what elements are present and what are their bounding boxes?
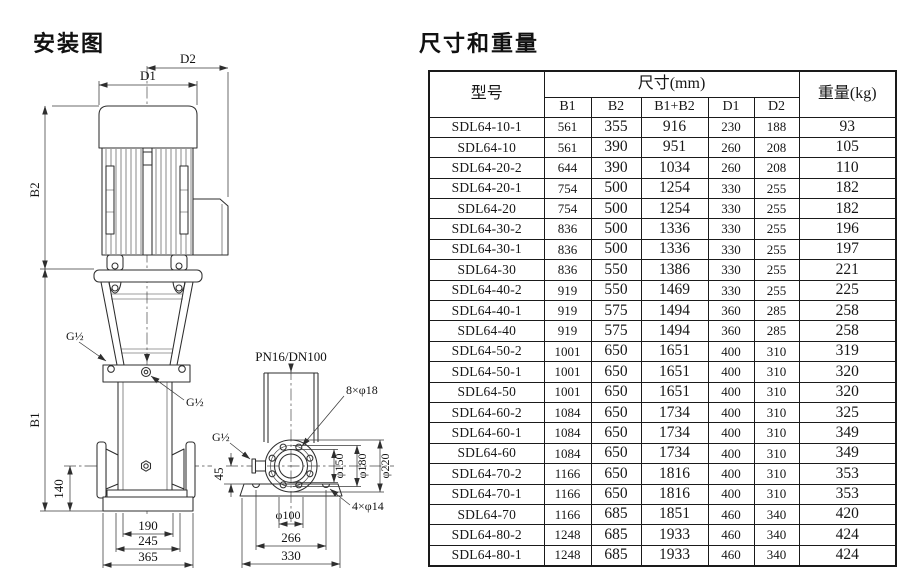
flange-view-dimensions: PN16/DN100 G½ 45 8×φ18 φ150 φ180 φ220 4×… xyxy=(211,349,392,568)
base-holes-label: 4×φ14 xyxy=(352,499,384,513)
table-row: SDL64-50-210016501651400310319 xyxy=(429,341,896,361)
dim-label-190: 190 xyxy=(138,518,158,533)
b2-cell: 355 xyxy=(591,117,641,137)
table-row: SDL64-30-28365001336330255196 xyxy=(429,219,896,239)
b1-cell: 754 xyxy=(544,178,591,198)
table-row: SDL64-30-18365001336330255197 xyxy=(429,239,896,259)
b1b2-cell: 1734 xyxy=(641,443,708,463)
b1-cell: 561 xyxy=(544,137,591,157)
b2-cell: 685 xyxy=(591,525,641,545)
weight-cell: 182 xyxy=(799,199,896,219)
b1b2-cell: 916 xyxy=(641,117,708,137)
b1-cell: 836 xyxy=(544,260,591,280)
dimensions-title: 尺寸和重量 xyxy=(419,26,539,58)
d1-cell: 330 xyxy=(708,199,754,219)
g-half-label-head-center: G½ xyxy=(186,395,204,409)
d2-cell: 310 xyxy=(754,382,799,402)
weight-cell: 258 xyxy=(799,321,896,341)
d2-cell: 255 xyxy=(754,178,799,198)
pump-base xyxy=(103,490,193,511)
model-cell: SDL64-30 xyxy=(429,260,544,280)
b1-cell: 561 xyxy=(544,117,591,137)
model-cell: SDL64-20-2 xyxy=(429,158,544,178)
d1-cell: 360 xyxy=(708,321,754,341)
weight-cell: 349 xyxy=(799,423,896,443)
col-header-d1: D1 xyxy=(708,97,754,117)
d2-cell: 310 xyxy=(754,484,799,504)
table-row: SDL64-60-110846501734400310349 xyxy=(429,423,896,443)
b2-cell: 685 xyxy=(591,504,641,524)
b2-cell: 500 xyxy=(591,219,641,239)
model-cell: SDL64-10 xyxy=(429,137,544,157)
d1-cell: 460 xyxy=(708,545,754,565)
weight-cell: 349 xyxy=(799,443,896,463)
col-header-b1b2: B1+B2 xyxy=(641,97,708,117)
d2-cell: 255 xyxy=(754,260,799,280)
table-row: SDL64-80-112486851933460340424 xyxy=(429,545,896,565)
d2-cell: 310 xyxy=(754,402,799,422)
table-row: SDL64-7011666851851460340420 xyxy=(429,504,896,524)
dim-label-45: 45 xyxy=(211,468,226,481)
b1-cell: 1248 xyxy=(544,545,591,565)
d1-cell: 330 xyxy=(708,280,754,300)
dim-label-b2: B2 xyxy=(27,182,42,197)
b1b2-cell: 1816 xyxy=(641,484,708,504)
flange-holes-label: 8×φ18 xyxy=(346,383,378,397)
d2-cell: 255 xyxy=(754,199,799,219)
pump-head xyxy=(103,365,190,382)
d1-cell: 400 xyxy=(708,402,754,422)
b1-cell: 919 xyxy=(544,321,591,341)
table-row: SDL64-207545001254330255182 xyxy=(429,199,896,219)
model-cell: SDL64-40 xyxy=(429,321,544,341)
pump-side-view xyxy=(64,66,228,516)
model-cell: SDL64-10-1 xyxy=(429,117,544,137)
g-half-label-port: G½ xyxy=(212,430,230,444)
dim-label-245: 245 xyxy=(138,533,158,548)
b2-cell: 500 xyxy=(591,199,641,219)
b1b2-cell: 1851 xyxy=(641,504,708,524)
b1-cell: 919 xyxy=(544,301,591,321)
weight-cell: 93 xyxy=(799,117,896,137)
model-cell: SDL64-70 xyxy=(429,504,544,524)
weight-cell: 110 xyxy=(799,158,896,178)
b1-cell: 1001 xyxy=(544,341,591,361)
dim-label-d2: D2 xyxy=(180,51,196,66)
b2-cell: 650 xyxy=(591,443,641,463)
weight-cell: 325 xyxy=(799,402,896,422)
d1-cell: 400 xyxy=(708,443,754,463)
b1b2-cell: 1651 xyxy=(641,341,708,361)
weight-cell: 196 xyxy=(799,219,896,239)
b1-cell: 754 xyxy=(544,199,591,219)
table-row: SDL64-308365501386330255221 xyxy=(429,260,896,280)
d1-cell: 330 xyxy=(708,260,754,280)
weight-cell: 319 xyxy=(799,341,896,361)
weight-cell: 320 xyxy=(799,382,896,402)
model-cell: SDL64-40-1 xyxy=(429,301,544,321)
table-row: SDL64-70-211666501816400310353 xyxy=(429,464,896,484)
b2-cell: 650 xyxy=(591,341,641,361)
weight-cell: 182 xyxy=(799,178,896,198)
weight-cell: 221 xyxy=(799,260,896,280)
weight-cell: 225 xyxy=(799,280,896,300)
d2-cell: 340 xyxy=(754,504,799,524)
d2-cell: 285 xyxy=(754,321,799,341)
weight-cell: 424 xyxy=(799,525,896,545)
table-row: SDL64-10561390951260208105 xyxy=(429,137,896,157)
model-cell: SDL64-20 xyxy=(429,199,544,219)
gauge-port xyxy=(252,459,266,473)
table-row: SDL64-40-19195751494360285258 xyxy=(429,301,896,321)
b1b2-cell: 1386 xyxy=(641,260,708,280)
dim-label-phi150: φ150 xyxy=(332,454,346,479)
table-row: SDL64-409195751494360285258 xyxy=(429,321,896,341)
b2-cell: 500 xyxy=(591,178,641,198)
weight-cell: 353 xyxy=(799,484,896,504)
d2-cell: 255 xyxy=(754,239,799,259)
b1b2-cell: 1034 xyxy=(641,158,708,178)
d1-cell: 400 xyxy=(708,341,754,361)
weight-cell: 258 xyxy=(799,301,896,321)
model-cell: SDL64-70-2 xyxy=(429,464,544,484)
d2-cell: 310 xyxy=(754,341,799,361)
dim-label-phi220: φ220 xyxy=(378,454,392,479)
model-cell: SDL64-60-2 xyxy=(429,402,544,422)
motor-fan-cover xyxy=(99,106,197,148)
d2-cell: 340 xyxy=(754,545,799,565)
table-row: SDL64-50-110016501651400310320 xyxy=(429,362,896,382)
table-row: SDL64-60-210846501734400310325 xyxy=(429,402,896,422)
b1b2-cell: 1469 xyxy=(641,280,708,300)
b1b2-cell: 1336 xyxy=(641,239,708,259)
b1b2-cell: 1651 xyxy=(641,362,708,382)
b1-cell: 919 xyxy=(544,280,591,300)
dim-label-phi100: φ100 xyxy=(276,508,301,522)
d1-cell: 260 xyxy=(708,158,754,178)
dim-label-d1: D1 xyxy=(140,68,156,83)
model-cell: SDL64-50-2 xyxy=(429,341,544,361)
table-row: SDL64-70-111666501816400310353 xyxy=(429,484,896,504)
b1b2-cell: 1933 xyxy=(641,545,708,565)
b1-cell: 1166 xyxy=(544,464,591,484)
b1b2-cell: 1336 xyxy=(641,219,708,239)
b1b2-cell: 1254 xyxy=(641,178,708,198)
col-header-b1: B1 xyxy=(544,97,591,117)
d2-cell: 340 xyxy=(754,525,799,545)
b2-cell: 390 xyxy=(591,158,641,178)
table-row: SDL64-20-17545001254330255182 xyxy=(429,178,896,198)
model-cell: SDL64-60 xyxy=(429,443,544,463)
model-cell: SDL64-50-1 xyxy=(429,362,544,382)
d1-cell: 400 xyxy=(708,423,754,443)
b1-cell: 1001 xyxy=(544,382,591,402)
catalog-page: { "page": { "background": "#ffffff", "li… xyxy=(0,0,900,582)
d2-cell: 255 xyxy=(754,219,799,239)
d1-cell: 400 xyxy=(708,362,754,382)
model-cell: SDL64-20-1 xyxy=(429,178,544,198)
b1-cell: 1248 xyxy=(544,525,591,545)
col-header-d2: D2 xyxy=(754,97,799,117)
d1-cell: 360 xyxy=(708,301,754,321)
d1-cell: 400 xyxy=(708,464,754,484)
weight-cell: 197 xyxy=(799,239,896,259)
d1-cell: 460 xyxy=(708,525,754,545)
d1-cell: 230 xyxy=(708,117,754,137)
model-cell: SDL64-50 xyxy=(429,382,544,402)
shaft-end-arrow xyxy=(144,354,150,362)
col-header-size-group: 尺寸(mm) xyxy=(544,71,799,97)
d2-cell: 310 xyxy=(754,362,799,382)
d1-cell: 330 xyxy=(708,178,754,198)
b2-cell: 390 xyxy=(591,137,641,157)
d2-cell: 310 xyxy=(754,464,799,484)
weight-cell: 424 xyxy=(799,545,896,565)
pump-column xyxy=(118,382,172,490)
b2-cell: 575 xyxy=(591,321,641,341)
b1-cell: 1084 xyxy=(544,423,591,443)
dim-label-330: 330 xyxy=(281,548,301,563)
col-header-b2: B2 xyxy=(591,97,641,117)
dim-label-phi180: φ180 xyxy=(355,454,369,479)
header-row: 型号 尺寸(mm) 重量(kg) xyxy=(429,71,896,97)
b1b2-cell: 1254 xyxy=(641,199,708,219)
terminal-box xyxy=(193,199,228,255)
b1-cell: 836 xyxy=(544,239,591,259)
model-cell: SDL64-30-2 xyxy=(429,219,544,239)
b2-cell: 650 xyxy=(591,423,641,443)
b1-cell: 644 xyxy=(544,158,591,178)
b1-cell: 1001 xyxy=(544,362,591,382)
dim-label-365: 365 xyxy=(138,549,158,564)
b1b2-cell: 1734 xyxy=(641,402,708,422)
table-row: SDL64-20-26443901034260208110 xyxy=(429,158,896,178)
d2-cell: 255 xyxy=(754,280,799,300)
shaft-strip xyxy=(143,148,152,255)
table-row: SDL64-40-29195501469330255225 xyxy=(429,280,896,300)
size-weight-table: 型号 尺寸(mm) 重量(kg) B1 B2 B1+B2 D1 D2 SDL64… xyxy=(428,70,897,567)
d1-cell: 460 xyxy=(708,504,754,524)
b1b2-cell: 1933 xyxy=(641,525,708,545)
table-row: SDL64-80-212486851933460340424 xyxy=(429,525,896,545)
d1-cell: 330 xyxy=(708,219,754,239)
model-cell: SDL64-80-2 xyxy=(429,525,544,545)
b1b2-cell: 951 xyxy=(641,137,708,157)
dim-label-140: 140 xyxy=(51,479,66,499)
b1-cell: 1084 xyxy=(544,443,591,463)
dim-label-266: 266 xyxy=(281,530,301,545)
col-header-model: 型号 xyxy=(429,71,544,117)
weight-cell: 353 xyxy=(799,464,896,484)
b1b2-cell: 1734 xyxy=(641,423,708,443)
weight-cell: 320 xyxy=(799,362,896,382)
table-row: SDL64-6010846501734400310349 xyxy=(429,443,896,463)
d2-cell: 208 xyxy=(754,158,799,178)
b2-cell: 550 xyxy=(591,260,641,280)
b1-cell: 836 xyxy=(544,219,591,239)
d1-cell: 330 xyxy=(708,239,754,259)
weight-cell: 105 xyxy=(799,137,896,157)
b1-cell: 1084 xyxy=(544,402,591,422)
b1-cell: 1166 xyxy=(544,504,591,524)
b1b2-cell: 1494 xyxy=(641,301,708,321)
d1-cell: 260 xyxy=(708,137,754,157)
mounting-plate xyxy=(94,270,202,282)
d2-cell: 208 xyxy=(754,137,799,157)
col-header-weight: 重量(kg) xyxy=(799,71,896,117)
b2-cell: 500 xyxy=(591,239,641,259)
model-cell: SDL64-30-1 xyxy=(429,239,544,259)
b1b2-cell: 1494 xyxy=(641,321,708,341)
model-cell: SDL64-70-1 xyxy=(429,484,544,504)
b2-cell: 650 xyxy=(591,484,641,504)
size-table-body: SDL64-10-156135591623018893SDL64-1056139… xyxy=(429,117,896,566)
b2-cell: 550 xyxy=(591,280,641,300)
table-row: SDL64-10-156135591623018893 xyxy=(429,117,896,137)
b2-cell: 650 xyxy=(591,382,641,402)
model-cell: SDL64-40-2 xyxy=(429,280,544,300)
d2-cell: 310 xyxy=(754,423,799,443)
b2-cell: 650 xyxy=(591,362,641,382)
b2-cell: 650 xyxy=(591,464,641,484)
weight-cell: 420 xyxy=(799,504,896,524)
b1-cell: 1166 xyxy=(544,484,591,504)
pn-label: PN16/DN100 xyxy=(255,349,327,364)
g-half-label-head-side: G½ xyxy=(66,329,84,343)
installation-diagram: D2 D1 B2 B1 140 190 245 365 G½ G½ xyxy=(0,0,420,582)
b2-cell: 575 xyxy=(591,301,641,321)
d2-cell: 188 xyxy=(754,117,799,137)
model-cell: SDL64-80-1 xyxy=(429,545,544,565)
dim-label-b1: B1 xyxy=(27,412,42,427)
b1b2-cell: 1651 xyxy=(641,382,708,402)
b2-cell: 650 xyxy=(591,402,641,422)
d2-cell: 285 xyxy=(754,301,799,321)
d2-cell: 310 xyxy=(754,443,799,463)
b2-cell: 685 xyxy=(591,545,641,565)
b1b2-cell: 1816 xyxy=(641,464,708,484)
d1-cell: 400 xyxy=(708,484,754,504)
table-row: SDL64-5010016501651400310320 xyxy=(429,382,896,402)
d1-cell: 400 xyxy=(708,382,754,402)
model-cell: SDL64-60-1 xyxy=(429,423,544,443)
